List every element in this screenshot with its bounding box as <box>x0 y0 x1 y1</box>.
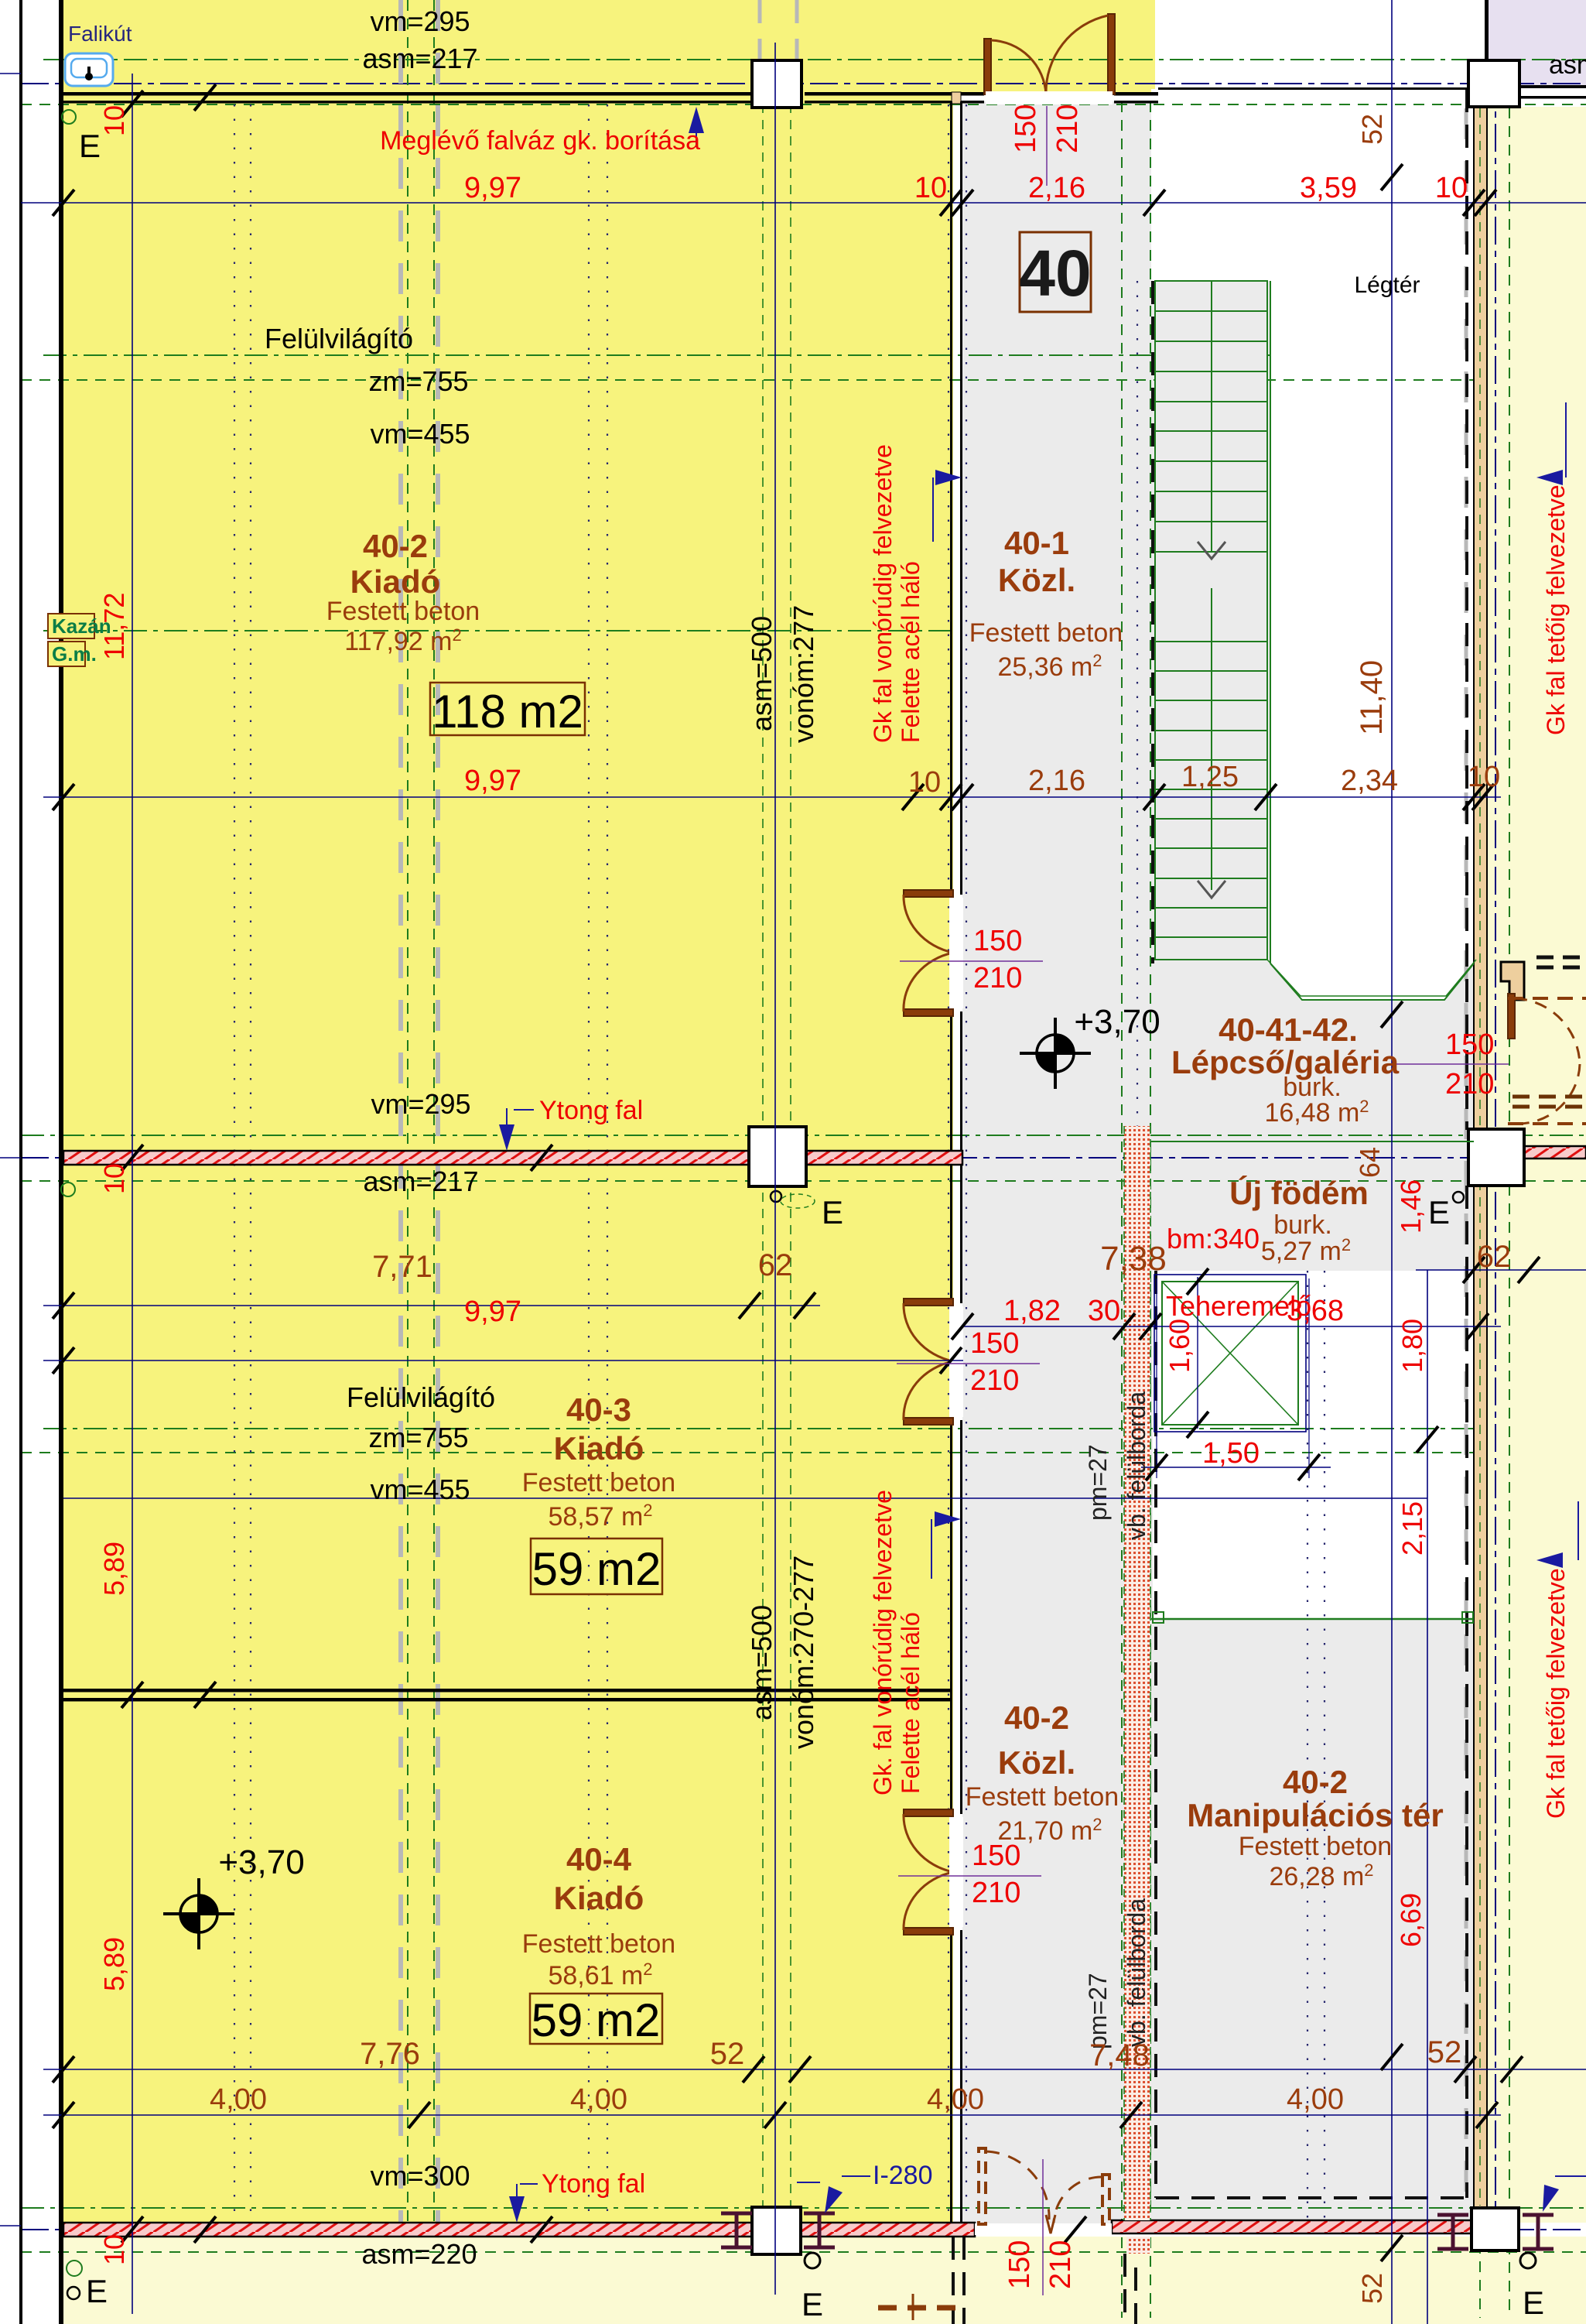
svg-text:vb. felülborda: vb. felülborda <box>1123 1391 1150 1540</box>
svg-text:62: 62 <box>1477 1240 1512 1274</box>
svg-text:Légtér: Légtér <box>1354 272 1420 298</box>
svg-text:vb. felülborda: vb. felülborda <box>1123 1898 1150 2047</box>
svg-text:Ytong fal: Ytong fal <box>542 2169 645 2199</box>
svg-text:25,36 m2: 25,36 m2 <box>997 651 1102 683</box>
svg-text:210: 210 <box>973 962 1022 994</box>
svg-text:asm=217: asm=217 <box>363 1165 478 1197</box>
svg-text:Új födém: Új födém <box>1229 1174 1369 1211</box>
svg-text:150: 150 <box>1003 2240 1036 2289</box>
svg-text:Felette acél háló: Felette acél háló <box>897 561 925 743</box>
svg-text:6,69: 6,69 <box>1395 1893 1427 1947</box>
svg-text:vm=300: vm=300 <box>370 2160 470 2192</box>
svg-text:asm=217: asm=217 <box>362 43 477 74</box>
svg-text:210: 210 <box>1445 1068 1494 1100</box>
svg-text:59 m2: 59 m2 <box>532 1543 661 1595</box>
svg-text:16,48 m2: 16,48 m2 <box>1264 1097 1369 1128</box>
svg-text:Felette acél háló: Felette acél háló <box>897 1612 925 1794</box>
svg-text:Falikút: Falikút <box>68 22 132 46</box>
svg-text:Felülvilágító: Felülvilágító <box>265 323 413 354</box>
svg-text:210: 210 <box>970 1364 1019 1397</box>
svg-text:5,27 m2: 5,27 m2 <box>1261 1235 1351 1267</box>
svg-text:asm=500: asm=500 <box>746 1605 778 1720</box>
svg-text:1,82: 1,82 <box>1003 1295 1061 1327</box>
svg-text:vm=455: vm=455 <box>370 1473 470 1505</box>
svg-text:10: 10 <box>98 105 130 136</box>
svg-text:2,34: 2,34 <box>1341 765 1398 797</box>
svg-text:Kiadó: Kiadó <box>350 563 441 600</box>
svg-text:4,00: 4,00 <box>1287 2083 1344 2116</box>
svg-text:Gk. fal vonórúdig felvezetve: Gk. fal vonórúdig felvezetve <box>869 1490 897 1795</box>
svg-text:1,80: 1,80 <box>1396 1319 1428 1373</box>
svg-text:52: 52 <box>1356 114 1388 145</box>
svg-text:62: 62 <box>758 1248 793 1282</box>
svg-text:40-2: 40-2 <box>1283 1764 1348 1800</box>
svg-text:9,97: 9,97 <box>464 172 521 204</box>
svg-text:E: E <box>86 2273 108 2309</box>
svg-text:Festett beton: Festett beton <box>522 1468 675 1497</box>
svg-text:Gk fal vonórúdig felvezetve: Gk fal vonórúdig felvezetve <box>869 444 897 743</box>
svg-text:Festett beton: Festett beton <box>1239 1832 1392 1861</box>
svg-text:Manipulációs tér: Manipulációs tér <box>1187 1797 1443 1833</box>
svg-text:pm=27: pm=27 <box>1084 1444 1112 1521</box>
svg-text:40-4: 40-4 <box>566 1841 632 1877</box>
svg-text:2,16: 2,16 <box>1028 765 1085 797</box>
svg-text:4,00: 4,00 <box>570 2083 627 2116</box>
svg-text:Meglévő falváz gk. borítása: Meglévő falváz gk. borítása <box>380 126 700 156</box>
svg-text:9,97: 9,97 <box>464 1295 521 1328</box>
svg-text:7,71: 7,71 <box>372 1250 432 1284</box>
svg-text:Közl.: Közl. <box>998 1744 1075 1781</box>
svg-text:40: 40 <box>1019 237 1091 310</box>
svg-text:40-41-42.: 40-41-42. <box>1219 1011 1358 1048</box>
svg-text:150: 150 <box>1010 104 1042 153</box>
svg-text:40-1: 40-1 <box>1004 525 1069 561</box>
svg-text:Felülvilágító: Felülvilágító <box>347 1381 495 1413</box>
svg-text:2,16: 2,16 <box>1028 172 1085 204</box>
svg-text:Kazán: Kazán <box>52 614 111 638</box>
svg-text:26,28 m2: 26,28 m2 <box>1269 1860 1373 1892</box>
svg-text:bm:340: bm:340 <box>1167 1223 1260 1254</box>
svg-text:2,15: 2,15 <box>1396 1501 1428 1556</box>
svg-text:3,59: 3,59 <box>1300 172 1357 204</box>
svg-text:1,50: 1,50 <box>1202 1437 1260 1470</box>
svg-text:150: 150 <box>1445 1029 1494 1061</box>
svg-text:5,89: 5,89 <box>98 1937 130 1991</box>
svg-text:asm=500: asm=500 <box>746 616 778 731</box>
svg-text:64: 64 <box>1354 1147 1386 1178</box>
svg-text:118 m2: 118 m2 <box>432 686 583 738</box>
svg-text:Közl.: Közl. <box>998 562 1075 598</box>
svg-text:40-2: 40-2 <box>1004 1699 1069 1736</box>
svg-text:zm=755: zm=755 <box>368 365 468 397</box>
svg-text:E: E <box>1428 1194 1450 1230</box>
svg-text:210: 210 <box>972 1877 1020 1909</box>
svg-text:Festett beton: Festett beton <box>969 618 1123 648</box>
svg-text:7,48: 7,48 <box>1089 2038 1150 2072</box>
svg-text:4,00: 4,00 <box>210 2083 267 2116</box>
svg-text:Gk fal tetőig felvezetve: Gk fal tetőig felvezetve <box>1542 1568 1570 1819</box>
svg-text:10: 10 <box>908 766 941 799</box>
svg-text:3,68: 3,68 <box>1287 1295 1344 1327</box>
svg-text:52: 52 <box>1427 2035 1462 2069</box>
svg-text:+3,70: +3,70 <box>218 1843 304 1881</box>
svg-text:58,57 m2: 58,57 m2 <box>548 1501 652 1532</box>
svg-text:Kiadó: Kiadó <box>554 1880 644 1916</box>
svg-text:1,25: 1,25 <box>1181 761 1239 793</box>
svg-text:210: 210 <box>1051 104 1084 153</box>
svg-text:E: E <box>79 128 101 164</box>
svg-text:7,38: 7,38 <box>1100 1240 1167 1278</box>
svg-text:40-3: 40-3 <box>566 1391 631 1428</box>
svg-text:Festett beton: Festett beton <box>966 1782 1119 1812</box>
svg-text:E: E <box>802 2286 823 2322</box>
svg-text:asm: asm <box>1549 50 1586 80</box>
svg-text:vonóm:270-277: vonóm:270-277 <box>788 1556 819 1749</box>
svg-text:zm=755: zm=755 <box>368 1422 468 1453</box>
svg-text:vm=455: vm=455 <box>370 418 470 450</box>
svg-text:Ytong fal: Ytong fal <box>539 1096 643 1125</box>
svg-text:59 m2: 59 m2 <box>532 1994 661 2046</box>
svg-text:7,76: 7,76 <box>360 2037 420 2071</box>
svg-text:117,92 m2: 117,92 m2 <box>344 625 462 657</box>
svg-text:I-280: I-280 <box>873 2161 933 2190</box>
svg-text:1,46: 1,46 <box>1395 1179 1427 1234</box>
svg-text:4,00: 4,00 <box>927 2083 984 2116</box>
svg-text:5,89: 5,89 <box>98 1542 130 1596</box>
svg-text:10: 10 <box>914 172 947 204</box>
svg-text:1,60: 1,60 <box>1164 1319 1195 1373</box>
svg-text:10: 10 <box>1468 761 1500 793</box>
svg-text:10: 10 <box>98 1163 130 1194</box>
svg-text:Gk fal tetőig felvezetve: Gk fal tetőig felvezetve <box>1542 484 1570 735</box>
svg-text:9,97: 9,97 <box>464 765 521 797</box>
svg-text:150: 150 <box>972 1840 1020 1872</box>
svg-text:210: 210 <box>1044 2240 1077 2289</box>
svg-text:58,61 m2: 58,61 m2 <box>548 1959 652 1991</box>
svg-text:asm=220: asm=220 <box>361 2238 477 2270</box>
svg-text:vm=295: vm=295 <box>371 1088 470 1120</box>
svg-text:52: 52 <box>1356 2273 1388 2304</box>
svg-text:11,40: 11,40 <box>1355 660 1389 735</box>
svg-text:150: 150 <box>973 925 1022 957</box>
svg-text:Festett beton: Festett beton <box>522 1929 675 1959</box>
svg-text:10: 10 <box>1435 172 1468 204</box>
svg-text:40-2: 40-2 <box>363 528 428 564</box>
svg-text:E: E <box>822 1194 843 1230</box>
svg-text:vonóm:277: vonóm:277 <box>788 605 819 743</box>
svg-text:E: E <box>1523 2285 1544 2321</box>
svg-text:burk.: burk. <box>1273 1210 1332 1240</box>
svg-text:10: 10 <box>98 2234 130 2265</box>
svg-text:30: 30 <box>1088 1295 1120 1327</box>
svg-text:Festett beton: Festett beton <box>326 597 480 626</box>
svg-text:vm=295: vm=295 <box>370 5 470 37</box>
svg-text:+3,70: +3,70 <box>1074 1003 1160 1041</box>
svg-text:52: 52 <box>710 2037 745 2071</box>
svg-text:Kiadó: Kiadó <box>554 1430 644 1467</box>
svg-text:150: 150 <box>970 1327 1019 1360</box>
svg-text:G.m.: G.m. <box>52 642 97 666</box>
